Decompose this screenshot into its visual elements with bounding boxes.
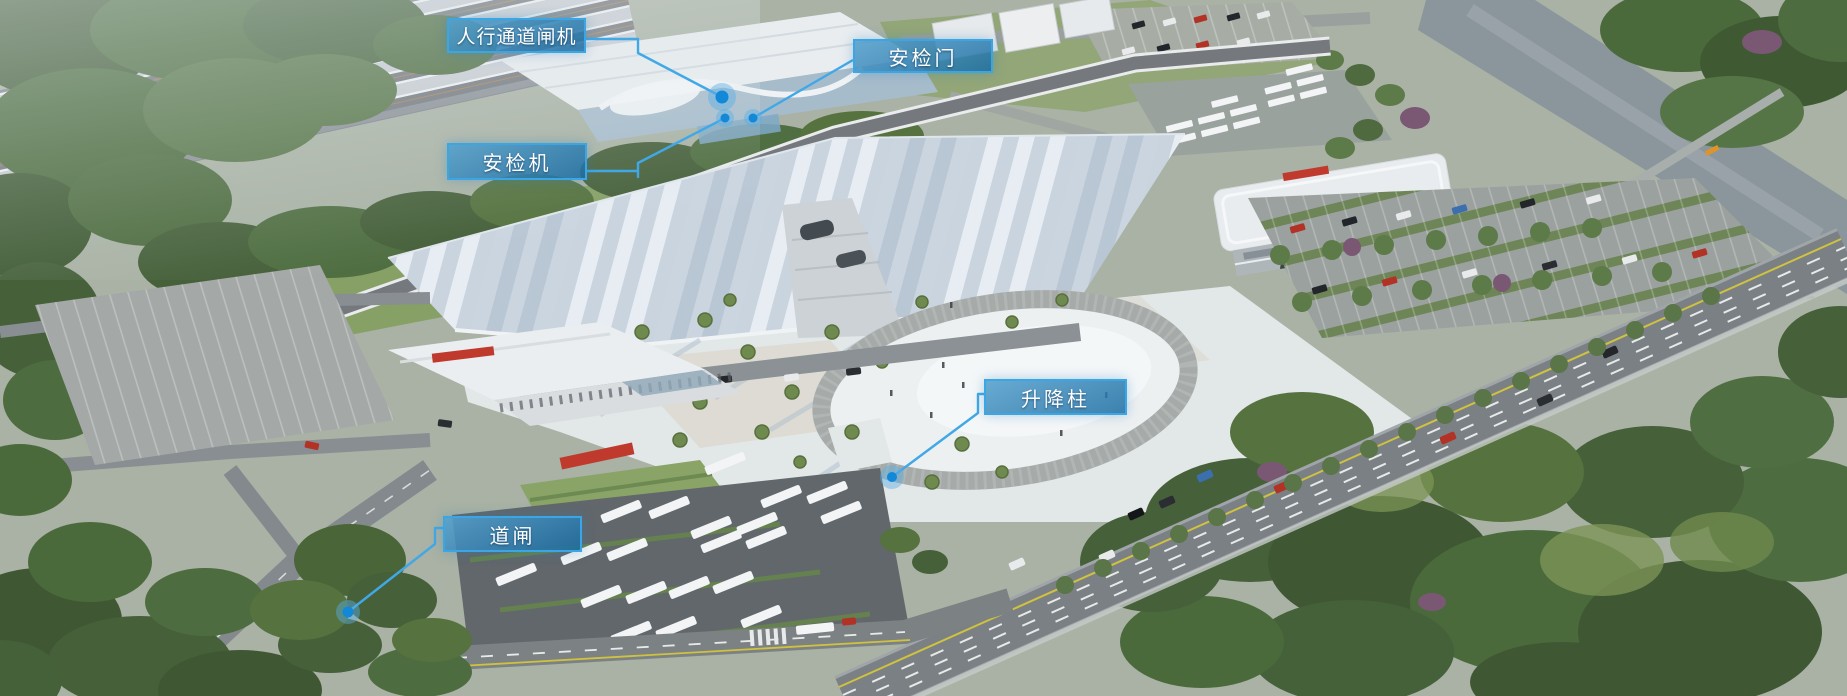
- car: [842, 617, 857, 625]
- callout-label: 安检机: [483, 147, 552, 176]
- callout-label: 道闸: [490, 520, 536, 549]
- scene-render: [0, 0, 1847, 696]
- marker-dot-security-door: [749, 114, 758, 123]
- haze: [0, 0, 760, 280]
- callout-barrier-gate[interactable]: 道闸: [443, 516, 582, 552]
- callout-lifting-bollard[interactable]: 升降柱: [984, 379, 1127, 415]
- marker-dot-pedestrian-gate: [716, 91, 729, 104]
- callout-label: 安检门: [889, 42, 958, 71]
- callout-security-door[interactable]: 安检门: [853, 39, 993, 73]
- marker-dot-barrier-gate: [343, 607, 354, 618]
- callout-security-machine[interactable]: 安检机: [447, 143, 587, 180]
- marker-dot-security-machine: [721, 114, 730, 123]
- callout-pedestrian-channel-gate[interactable]: 人行通道闸机: [447, 18, 586, 53]
- station-aerial-annotated-render: 人行通道闸机 安检门 安检机 升降柱 道闸: [0, 0, 1847, 696]
- marker-dot-lifting-bollard: [887, 472, 897, 482]
- callout-label: 人行通道闸机: [456, 22, 576, 49]
- callout-label: 升降柱: [1021, 383, 1090, 412]
